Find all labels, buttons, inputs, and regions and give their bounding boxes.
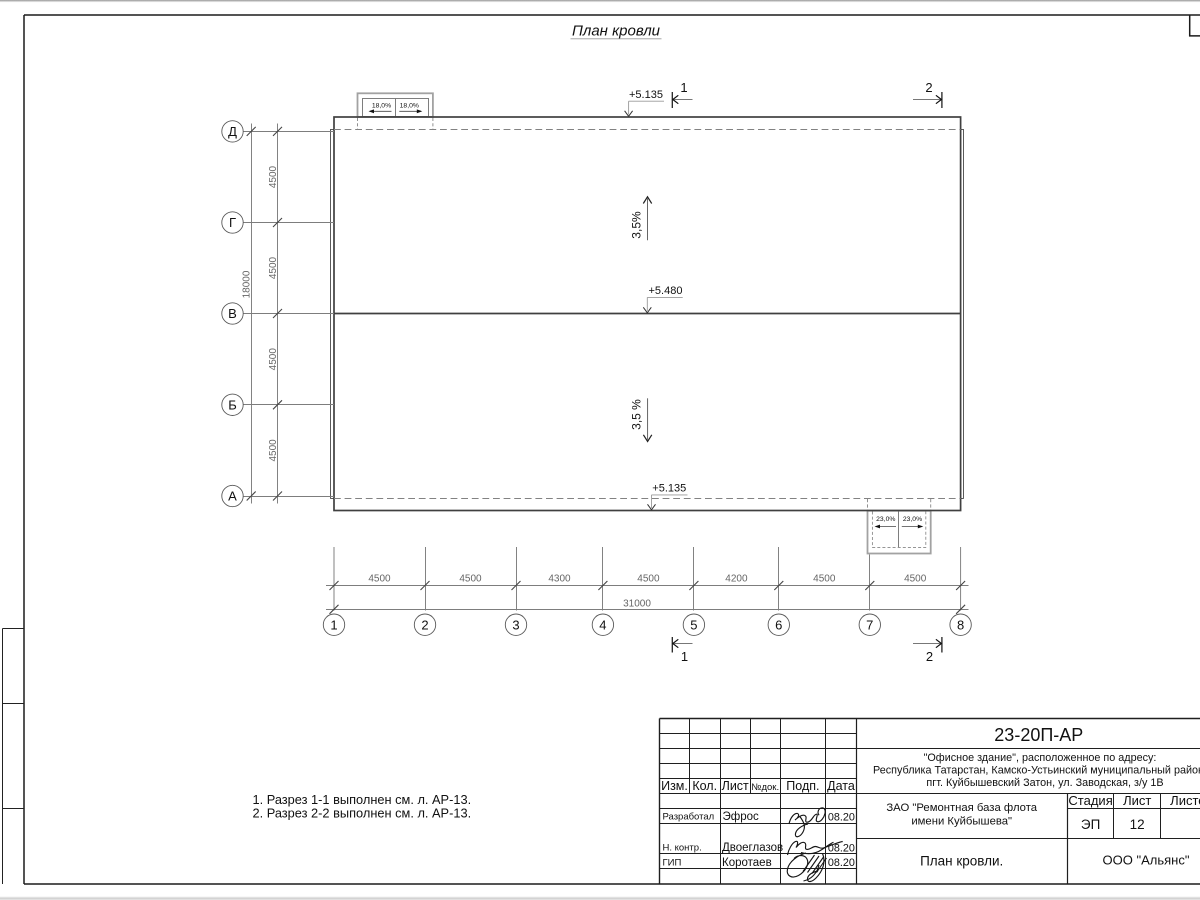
svg-text:ГИП: ГИП [663,857,682,868]
svg-text:А: А [228,489,237,504]
svg-text:План кровли.: План кровли. [920,854,1003,869]
svg-text:1: 1 [681,649,688,664]
svg-text:Двоеглазов: Двоеглазов [722,842,783,854]
svg-text:4300: 4300 [548,574,571,585]
svg-text:2: 2 [926,649,933,664]
svg-text:4500: 4500 [904,574,927,585]
svg-text:Дата: Дата [827,779,855,793]
svg-text:4500: 4500 [268,256,279,279]
svg-text:18000: 18000 [242,270,253,298]
svg-text:Подп.: Подп. [786,779,819,793]
svg-text:6: 6 [775,617,782,632]
svg-text:1: 1 [680,80,687,95]
svg-text:+5.135: +5.135 [652,482,686,494]
svg-text:4500: 4500 [268,439,279,462]
svg-text:23,0%: 23,0% [876,516,895,523]
svg-text:18,0%: 18,0% [400,102,419,109]
svg-text:Кол.: Кол. [692,779,717,793]
svg-text:3: 3 [512,617,519,632]
svg-text:4500: 4500 [459,574,482,585]
svg-text:2: 2 [421,617,428,632]
svg-text:23-20П-АР: 23-20П-АР [994,725,1083,745]
svg-text:1: 1 [330,617,337,632]
svg-text:4200: 4200 [725,574,748,585]
svg-text:4: 4 [599,617,606,632]
svg-text:4500: 4500 [637,574,660,585]
svg-text:23,0%: 23,0% [903,516,922,523]
svg-text:08.20: 08.20 [828,842,855,854]
svg-text:Г: Г [229,215,236,230]
svg-text:4500: 4500 [268,348,279,371]
svg-text:В: В [228,306,237,321]
svg-text:Изм.: Изм. [661,779,688,793]
svg-text:08.20: 08.20 [828,811,855,823]
svg-text:Республика Татарстан, Камско-У: Республика Татарстан, Камско-Устьинский … [873,764,1200,776]
svg-text:4500: 4500 [268,165,279,188]
svg-text:+5.480: +5.480 [649,285,683,297]
svg-text:План кровли: План кровли [572,23,661,40]
svg-text:Н. контр.: Н. контр. [663,843,702,854]
svg-text:+5.135: +5.135 [629,89,663,101]
svg-text:7: 7 [866,617,873,632]
svg-text:Б: Б [228,397,237,412]
svg-text:№док.: №док. [751,782,779,793]
svg-text:Разработал: Разработал [663,812,715,823]
svg-text:Д: Д [228,124,237,139]
svg-text:пгт. Куйбышевский Затон, ул. З: пгт. Куйбышевский Затон, ул. Заводская, … [926,777,1163,789]
svg-text:"Офисное здание", расположенно: "Офисное здание", расположенное по адрес… [924,752,1157,764]
svg-text:имени Куйбышева": имени Куйбышева" [911,815,1012,827]
svg-text:12: 12 [1130,817,1145,832]
svg-text:5: 5 [690,617,697,632]
svg-text:2. Разрез 2-2 выполнен см. л.: 2. Разрез 2-2 выполнен см. л. АР-13. [253,805,472,820]
svg-text:8: 8 [957,617,964,632]
svg-text:2: 2 [925,80,932,95]
svg-text:3,5%: 3,5% [629,211,643,239]
svg-text:31000: 31000 [623,599,651,610]
svg-text:Лист: Лист [1123,793,1151,808]
svg-text:Лист: Лист [722,779,749,793]
svg-text:ООО "Альянс": ООО "Альянс" [1103,853,1190,868]
svg-text:Коротаев: Коротаев [722,857,772,869]
svg-text:4500: 4500 [813,574,836,585]
svg-text:3,5 %: 3,5 % [629,399,643,430]
svg-text:08.20: 08.20 [828,857,855,869]
svg-text:Листов: Листов [1170,793,1200,808]
svg-text:Эфрос: Эфрос [723,811,760,823]
svg-text:ЗАО "Ремонтная база флота: ЗАО "Ремонтная база флота [886,802,1037,814]
svg-text:4500: 4500 [368,574,391,585]
svg-text:18,0%: 18,0% [372,102,391,109]
svg-text:Стадия: Стадия [1068,793,1112,808]
svg-text:ЭП: ЭП [1081,817,1100,832]
